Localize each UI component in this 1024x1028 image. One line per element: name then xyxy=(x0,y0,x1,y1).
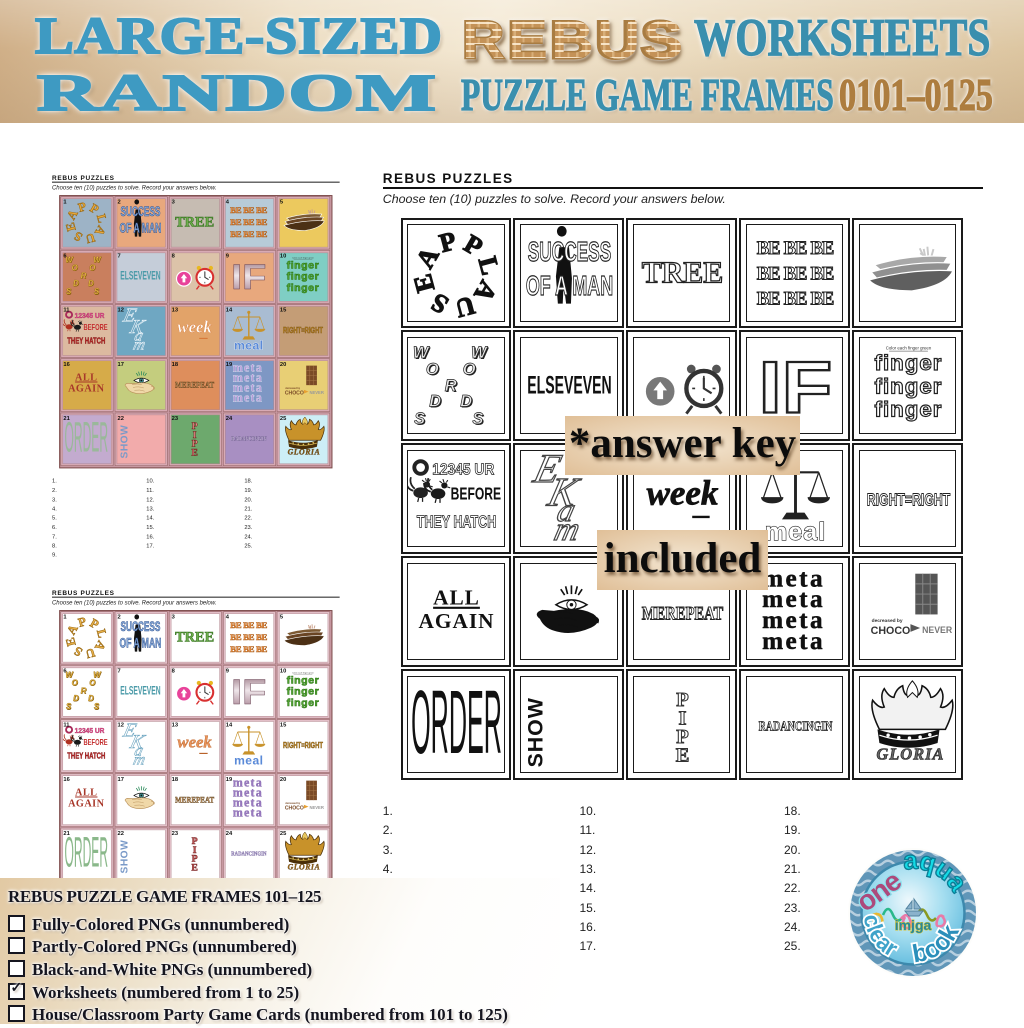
svg-text:NEVER: NEVER xyxy=(922,625,953,635)
svg-text:S: S xyxy=(426,287,453,319)
svg-text:ALL: ALL xyxy=(75,788,97,799)
svg-text:BEFORE: BEFORE xyxy=(83,737,107,747)
svg-text:P: P xyxy=(77,614,88,630)
svg-text:decreased by: decreased by xyxy=(871,618,902,624)
svg-text:finger: finger xyxy=(874,397,942,421)
svg-text:BE BE BE: BE BE BE xyxy=(230,217,267,227)
svg-text:ELSEVEVEN: ELSEVEVEN xyxy=(120,684,160,698)
svg-text:ELSEVEVEN: ELSEVEVEN xyxy=(120,269,160,283)
svg-text:BE BE BE: BE BE BE xyxy=(230,229,267,239)
svg-text:E: E xyxy=(63,221,79,233)
svg-text:D: D xyxy=(429,392,441,410)
svg-text:TREE: TREE xyxy=(175,630,214,646)
svg-text:GLORIA: GLORIA xyxy=(287,448,320,457)
svg-text:L: L xyxy=(473,254,505,278)
svg-text:BE BE BE: BE BE BE xyxy=(230,205,267,215)
svg-text:finger: finger xyxy=(874,374,942,398)
svg-text:S: S xyxy=(414,410,425,428)
svg-text:MEREPEAT: MEREPEAT xyxy=(175,795,214,805)
svg-text:CHOCO: CHOCO xyxy=(285,391,304,397)
svg-text:S: S xyxy=(66,702,72,711)
svg-text:D: D xyxy=(73,694,79,703)
svg-text:RADANCINGIN: RADANCINGIN xyxy=(231,436,267,443)
svg-text:BE BE BE: BE BE BE xyxy=(230,632,267,642)
svg-text:O: O xyxy=(72,679,78,688)
svg-text:W: W xyxy=(471,344,488,362)
svg-text:OF A MAN: OF A MAN xyxy=(526,270,613,301)
svg-text:imjga: imjga xyxy=(895,917,932,933)
svg-text:THEY HATCH: THEY HATCH xyxy=(67,336,105,346)
svg-text:E: E xyxy=(408,271,440,295)
svg-text:BE BE BE: BE BE BE xyxy=(756,238,834,258)
svg-text:RIGHT=RIGHT: RIGHT=RIGHT xyxy=(866,489,950,509)
svg-text:BE BE BE: BE BE BE xyxy=(230,620,267,630)
svg-text:BE BE BE: BE BE BE xyxy=(756,289,834,309)
svg-text:OF A MAN: OF A MAN xyxy=(119,635,161,650)
svg-text:NEVER: NEVER xyxy=(309,391,323,396)
svg-text:GLORIA: GLORIA xyxy=(876,744,944,763)
svg-text:Color each finger green: Color each finger green xyxy=(292,672,315,675)
svg-text:CHOCO: CHOCO xyxy=(285,806,304,812)
svg-text:P: P xyxy=(459,229,487,262)
svg-text:week: week xyxy=(647,473,719,512)
svg-text:MEREPEAT: MEREPEAT xyxy=(175,380,214,390)
svg-text:finger: finger xyxy=(286,283,319,294)
svg-text:GLORIA: GLORIA xyxy=(287,863,320,872)
svg-text:R: R xyxy=(81,272,87,281)
svg-text:S: S xyxy=(94,702,100,711)
svg-text:meta: meta xyxy=(233,806,263,820)
svg-text:A: A xyxy=(64,622,81,637)
svg-text:week: week xyxy=(177,733,212,752)
svg-text:SUCCESS: SUCCESS xyxy=(528,236,611,267)
svg-text:O: O xyxy=(89,264,95,273)
svg-text:BE BE BE: BE BE BE xyxy=(756,263,834,283)
svg-text:TREE: TREE xyxy=(175,215,214,231)
svg-text:SUCCESS: SUCCESS xyxy=(120,619,160,634)
svg-text:ALL: ALL xyxy=(433,585,480,609)
svg-text:RIGHT=RIGHT: RIGHT=RIGHT xyxy=(283,325,324,335)
svg-text:ALL: ALL xyxy=(75,373,97,384)
svg-text:BEFORE: BEFORE xyxy=(451,483,501,503)
svg-text:week: week xyxy=(177,318,212,337)
svg-text:O: O xyxy=(463,360,476,378)
svg-text:SHOW: SHOW xyxy=(523,697,547,767)
svg-text:E: E xyxy=(63,636,79,648)
svg-text:L: L xyxy=(94,628,110,640)
svg-text:S: S xyxy=(94,287,100,296)
svg-text:O: O xyxy=(89,679,95,688)
svg-text:S: S xyxy=(66,287,72,296)
svg-text:R: R xyxy=(81,686,87,695)
svg-text:ORDER: ORDER xyxy=(65,416,108,462)
svg-text:finger: finger xyxy=(286,687,319,698)
svg-text:E: E xyxy=(676,744,690,766)
svg-text:meal: meal xyxy=(234,339,263,353)
svg-text:meal: meal xyxy=(234,754,263,768)
svg-text:AGAIN: AGAIN xyxy=(68,384,105,395)
svg-text:finger: finger xyxy=(286,698,319,709)
svg-text:IF: IF xyxy=(231,673,266,712)
svg-text:AGAIN: AGAIN xyxy=(68,799,105,810)
svg-text:THEY HATCH: THEY HATCH xyxy=(67,751,105,761)
svg-text:12345 UR: 12345 UR xyxy=(75,312,105,321)
svg-text:ELSEVEVEN: ELSEVEVEN xyxy=(527,371,611,399)
svg-text:P: P xyxy=(436,226,459,258)
svg-text:meal: meal xyxy=(765,518,826,546)
svg-text:12345 UR: 12345 UR xyxy=(75,726,105,735)
svg-text:finger: finger xyxy=(874,351,942,375)
svg-text:THEY HATCH: THEY HATCH xyxy=(417,511,497,531)
svg-text:S: S xyxy=(72,644,85,660)
svg-text:CHOCO: CHOCO xyxy=(870,625,910,637)
svg-text:D: D xyxy=(460,392,472,410)
svg-text:W: W xyxy=(413,344,430,362)
svg-text:SHOW: SHOW xyxy=(119,840,130,874)
svg-text:O: O xyxy=(426,360,439,378)
svg-text:Color each finger green: Color each finger green xyxy=(885,346,931,351)
svg-text:finger: finger xyxy=(286,261,319,272)
svg-text:S: S xyxy=(72,229,85,245)
svg-text:L: L xyxy=(94,213,110,225)
svg-text:A: A xyxy=(64,207,81,222)
svg-text:RIGHT=RIGHT: RIGHT=RIGHT xyxy=(283,740,324,750)
svg-text:BEFORE: BEFORE xyxy=(83,323,107,333)
svg-text:R: R xyxy=(445,377,457,395)
svg-text:meta: meta xyxy=(233,391,263,405)
svg-text:meta: meta xyxy=(762,628,825,655)
svg-text:O: O xyxy=(72,264,78,273)
svg-text:finger: finger xyxy=(286,272,319,283)
svg-text:AGAIN: AGAIN xyxy=(419,609,495,633)
svg-text:E: E xyxy=(191,863,198,874)
svg-text:E: E xyxy=(191,448,198,459)
svg-text:D: D xyxy=(73,279,79,288)
svg-text:IF: IF xyxy=(231,258,266,297)
svg-text:MEREPEAT: MEREPEAT xyxy=(642,603,724,623)
svg-text:SUCCESS: SUCCESS xyxy=(120,204,160,219)
svg-text:finger: finger xyxy=(286,675,319,686)
svg-text:BE BE BE: BE BE BE xyxy=(230,644,267,654)
svg-text:RADANCINGIN: RADANCINGIN xyxy=(758,718,832,733)
svg-text:A: A xyxy=(410,242,445,273)
svg-text:SHOW: SHOW xyxy=(119,425,130,459)
svg-text:12345 UR: 12345 UR xyxy=(432,461,494,478)
svg-text:RADANCINGIN: RADANCINGIN xyxy=(231,851,267,858)
svg-text:NEVER: NEVER xyxy=(309,805,323,810)
svg-text:TREE: TREE xyxy=(642,255,723,290)
svg-text:ORDER: ORDER xyxy=(411,677,502,772)
svg-text:S: S xyxy=(472,410,483,428)
svg-text:ORDER: ORDER xyxy=(65,830,108,876)
svg-text:OF A MAN: OF A MAN xyxy=(119,221,161,236)
